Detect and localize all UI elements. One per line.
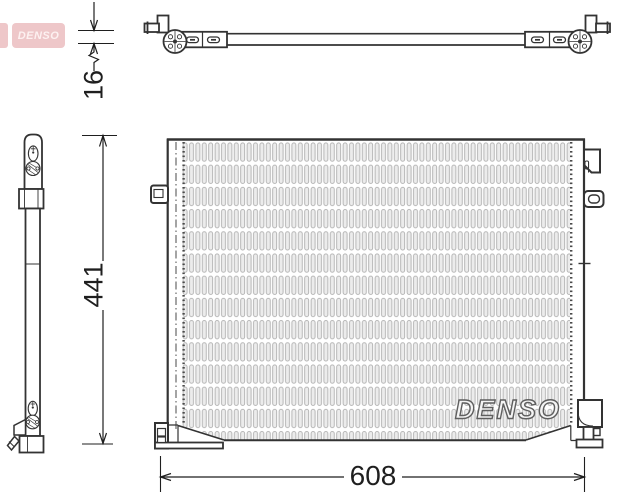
side-view-drawing: [8, 135, 44, 453]
right-clip: [584, 191, 604, 207]
right-lower-bracket: [578, 400, 602, 427]
denso-watermark: DENSO: [455, 395, 561, 426]
condenser-technical-drawing: DENSO: [0, 0, 640, 495]
top-view-drawing: [145, 16, 611, 54]
dim-thickness-label: 16: [81, 70, 108, 100]
dim-height-label: 441: [81, 262, 108, 307]
dim-thickness-lines: [78, 2, 114, 71]
core-fins-pattern: [182, 141, 570, 426]
dim-width-label: 608: [350, 462, 397, 490]
